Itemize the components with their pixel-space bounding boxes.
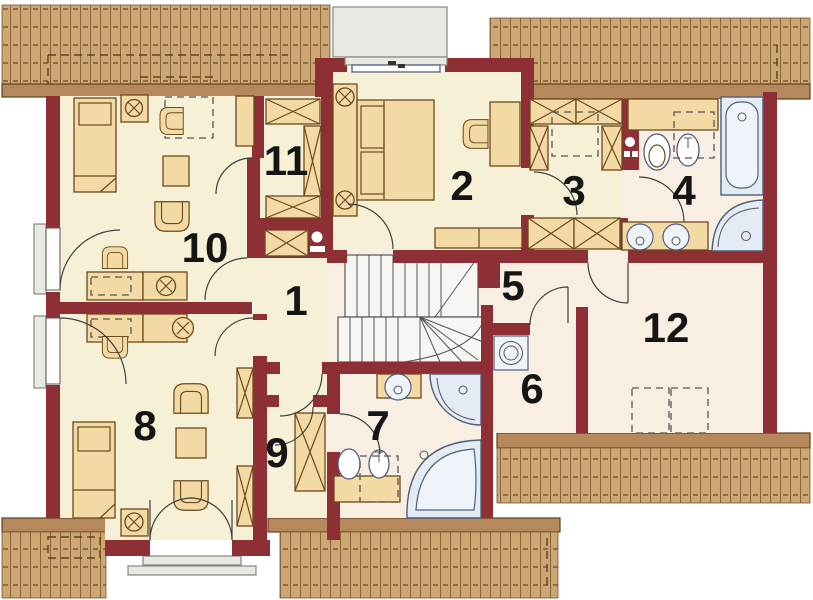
desk-chair — [160, 108, 183, 135]
washbasin — [377, 374, 421, 400]
room-12-label: 12 — [643, 304, 690, 351]
floor-plan-drawing: 1 2 3 4 5 6 7 8 9 10 11 12 — [0, 0, 813, 600]
nightstand-lamp-icon — [121, 95, 148, 122]
room-9-label: 9 — [265, 429, 288, 476]
staircase — [338, 255, 483, 362]
terrace-window — [345, 57, 447, 72]
bidet — [677, 134, 699, 166]
armchair — [174, 481, 208, 510]
roof-hatch-bottom-left — [2, 518, 116, 598]
balcony-sill-left-top — [34, 224, 46, 294]
roof-hatch-bottom-right — [497, 433, 810, 503]
room-6-label: 6 — [520, 365, 543, 412]
bathtub — [721, 97, 763, 195]
room-11-label: 11 — [264, 137, 308, 184]
terrace — [333, 7, 447, 57]
room-1-label: 1 — [284, 277, 307, 324]
roof-hatch-top-right — [490, 18, 810, 99]
side-table — [163, 156, 189, 186]
cabinet — [236, 96, 254, 146]
bed — [73, 422, 115, 518]
roof-hatch-bottom-center — [268, 518, 560, 598]
room-9-wardrobe — [295, 413, 325, 491]
desk-chair — [102, 247, 127, 269]
room-10-label: 10 — [182, 224, 229, 271]
balcony-door-leaf — [46, 318, 60, 384]
desk-with-computer — [87, 272, 187, 300]
armchair — [174, 384, 208, 413]
room-8-label: 8 — [133, 402, 156, 449]
dresser — [435, 228, 522, 248]
desk-chair — [463, 120, 488, 149]
room-5-label: 5 — [501, 262, 524, 309]
floor-lamp-icon — [121, 509, 148, 536]
double-washbasin — [622, 222, 708, 250]
bed — [74, 98, 116, 192]
double-bed — [333, 84, 434, 216]
entrance-threshold — [128, 556, 256, 575]
desk — [490, 102, 520, 166]
room-7-label: 7 — [366, 402, 389, 449]
room-2-label: 2 — [450, 162, 473, 209]
room-4-label: 4 — [672, 167, 696, 214]
balcony-sill-left-bottom — [34, 316, 46, 388]
counter — [628, 99, 718, 130]
roof-hatch-top-left — [2, 5, 330, 97]
coffee-table — [176, 428, 206, 458]
room-3-label: 3 — [562, 167, 585, 214]
toilet — [644, 134, 670, 170]
balcony-door-leaf — [46, 228, 60, 290]
floor-plan: 1 2 3 4 5 6 7 8 9 10 11 12 — [0, 0, 813, 600]
